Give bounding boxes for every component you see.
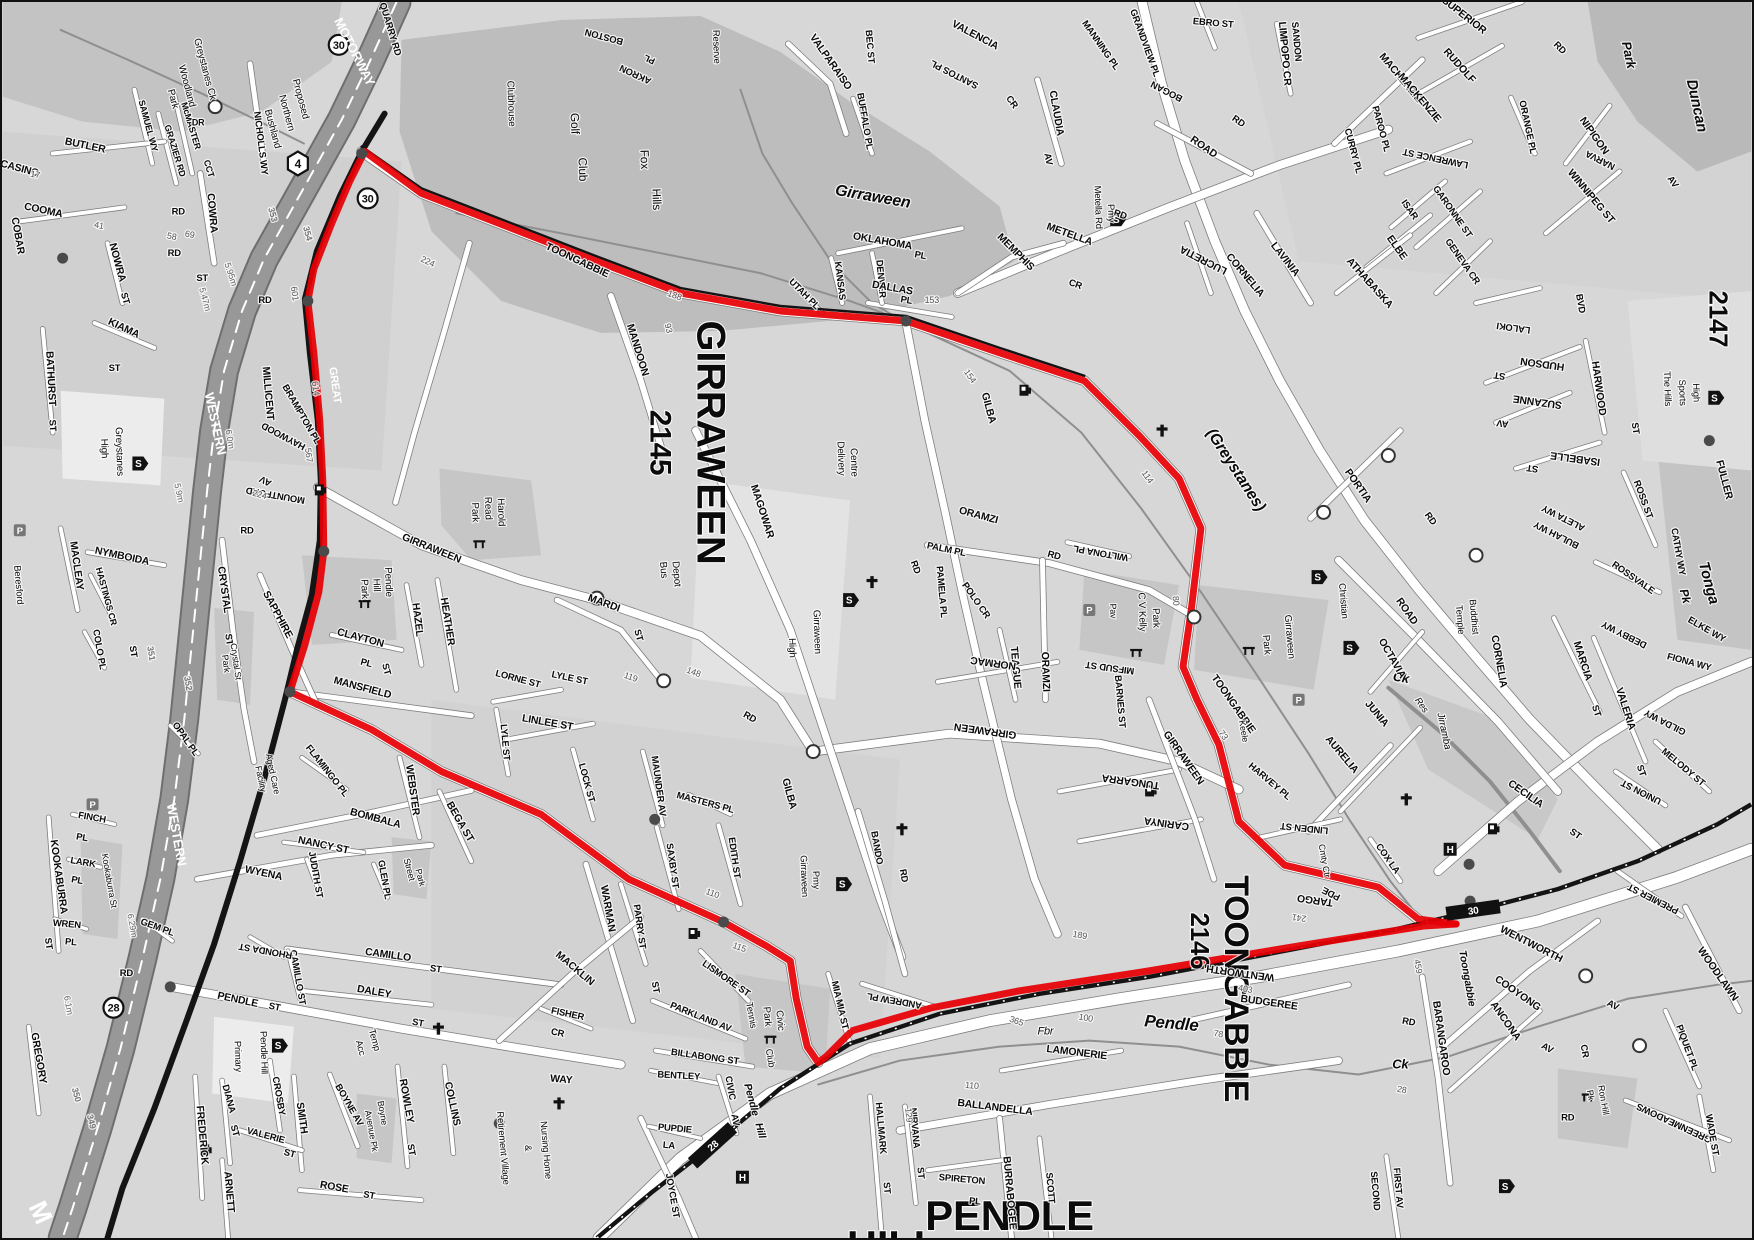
map-label: Delivery (835, 441, 847, 476)
picnic-table-icon (1243, 647, 1255, 649)
area-14 (1558, 1069, 1638, 1149)
traffic-signal-dot (900, 315, 911, 326)
school-icon-letter: S (839, 880, 846, 891)
map-label: Hill (370, 578, 381, 591)
roundabout (209, 100, 222, 113)
map-label: BENTLEY (657, 1069, 701, 1082)
map-label: ST (362, 1189, 376, 1202)
map-label: 2146 (1185, 913, 1213, 970)
school-icon-letter: S (135, 459, 142, 470)
map-label: High (98, 438, 110, 458)
map-label: 110 (965, 1080, 980, 1091)
map-label: Fox (637, 149, 652, 169)
map-label: 153 (925, 295, 940, 305)
fuel-icon-window (1490, 825, 1494, 829)
traffic-signal-dot (165, 981, 176, 992)
church-cross-icon-bar (1401, 796, 1412, 799)
map-label: 17 (30, 169, 41, 181)
map-label: ST (42, 937, 55, 951)
map-label: Greystanes (113, 427, 126, 476)
metroad-shield-number: 4 (295, 157, 302, 171)
map-label: Club (576, 157, 591, 182)
fuel-icon-nozzle (324, 487, 326, 493)
map-label: Pendle Hill (257, 1031, 269, 1074)
roundabout (1382, 449, 1395, 462)
map-label: Depot (670, 561, 683, 588)
map-label: 2145 (644, 410, 677, 476)
map-label: RD (897, 868, 910, 883)
roundabout (657, 674, 670, 687)
fuel-icon-window (691, 930, 695, 934)
picnic-table-leg (773, 1038, 775, 1044)
traffic-signal-dot (1704, 435, 1715, 446)
map-label: 2147 (1703, 291, 1731, 348)
picnic-table-leg (367, 602, 369, 608)
map-label: ST (1629, 422, 1642, 436)
church-cross-icon (437, 1023, 440, 1035)
area-20 (1628, 291, 1752, 470)
map-label: High (786, 638, 798, 658)
map-label: ST (1493, 369, 1507, 382)
traffic-signal-dot (302, 296, 313, 307)
map-label: 69 (184, 229, 195, 241)
map-label: 58 (166, 231, 177, 243)
map-label: LA (662, 1140, 675, 1152)
parking-icon-letter: P (1086, 606, 1092, 617)
map-label: C V Kelly (1135, 592, 1147, 632)
map-label: 601 (289, 286, 301, 302)
traffic-signal-dot (1464, 859, 1475, 870)
roundabout (1317, 506, 1330, 519)
map-label: ORAMZI (1039, 652, 1051, 693)
picnic-table-leg (1139, 651, 1141, 657)
traffic-signal-dot (284, 686, 295, 697)
picnic-table-leg (766, 1038, 768, 1044)
church-cross-icon-bar (867, 579, 878, 582)
map-label: Harold (495, 498, 507, 526)
map-label: Sports (1676, 379, 1688, 406)
map-label: PL (900, 294, 914, 307)
school-icon-letter: S (1502, 1182, 1509, 1193)
map-label: Golf (568, 113, 583, 135)
school-icon-letter: S (1314, 573, 1321, 584)
picnic-table-leg (1132, 651, 1134, 657)
roundabout (1187, 611, 1200, 624)
street-directory-map: SSSSSSSSSPPPPHH30302842830GIRRAWEEN2145T… (0, 0, 1754, 1240)
fuel-icon-window (1022, 387, 1026, 391)
map-label: Reserve (710, 30, 722, 64)
route-shield-number: 30 (362, 193, 374, 205)
map-label: The Hills (1661, 371, 1673, 407)
map-label: RD (168, 248, 182, 259)
map-label: Hills (649, 188, 664, 210)
map-label: PL (914, 249, 928, 262)
traffic-signal-dot (318, 546, 329, 557)
picnic-table-leg (482, 542, 484, 548)
map-label: 78 (1213, 1028, 1224, 1040)
school-icon-letter: S (1346, 643, 1353, 654)
map-label: 129 (903, 1108, 914, 1123)
map-label: 80 (1171, 596, 1182, 607)
school-icon-letter: S (1711, 393, 1718, 404)
picnic-table-icon (473, 540, 485, 542)
map-label: Girraween (798, 855, 810, 897)
map-label: RD (1561, 1112, 1575, 1123)
map-label: 614 (310, 381, 322, 397)
map-label: Pav (1108, 603, 1119, 619)
map-label: RD (120, 968, 134, 979)
route-shield-number: 28 (108, 1003, 120, 1015)
map-label: DR (192, 118, 205, 128)
picnic-table-leg (1251, 649, 1253, 655)
map-label: 28 (1396, 1084, 1407, 1096)
map-label: Park (761, 1006, 774, 1027)
picnic-table-leg (475, 542, 477, 548)
roundabout (807, 745, 820, 758)
map-label: Pendle (382, 567, 394, 598)
roundabout (1470, 549, 1483, 562)
hospital-icon-letter: H (1447, 845, 1454, 856)
railway-station-number: 30 (1467, 905, 1480, 917)
picnic-table-icon (359, 600, 371, 602)
map-label: WAY (550, 1074, 573, 1087)
map-label: Pmy (1105, 204, 1117, 223)
picnic-table-icon (1130, 649, 1142, 651)
map-label: Civic (773, 1010, 786, 1032)
fuel-icon-nozzle (1497, 826, 1499, 832)
map-label: PL (969, 1196, 982, 1208)
map-label: Fbr (1038, 1026, 1055, 1038)
map-label: PL (70, 874, 84, 887)
map-label: PL (75, 831, 89, 844)
map-label: Park (1260, 634, 1273, 655)
map-label: ST (127, 645, 140, 659)
map-label: CR (1578, 1044, 1591, 1059)
map-label: Girraween (810, 610, 823, 654)
map-label: High (1690, 383, 1702, 402)
map-label: ST (109, 363, 121, 374)
map-label: GIRRAWEEN (689, 321, 733, 565)
map-label: Park (1150, 608, 1162, 628)
map-label: Park (469, 502, 481, 522)
area-18 (61, 391, 165, 486)
church-cross-icon (557, 1097, 560, 1109)
map-label: ST (649, 981, 662, 995)
church-cross-icon-bar (1157, 427, 1168, 430)
parking-icon-letter: P (1296, 695, 1302, 706)
picnic-table-leg (360, 602, 362, 608)
hospital-icon-letter: H (739, 1173, 746, 1184)
map-label: Ck (1392, 1057, 1409, 1072)
map-label: Bus (657, 561, 669, 579)
traffic-signal-dot (356, 148, 367, 159)
map-label: Park (358, 579, 370, 599)
traffic-signal-dot (718, 917, 729, 928)
map-label: Metella Rd (1092, 185, 1105, 229)
map-label: HILL (847, 1222, 939, 1238)
map-label: ST (405, 1143, 418, 1157)
map-label: 241 (1291, 912, 1307, 924)
picnic-table-leg (1244, 649, 1246, 655)
map-canvas: SSSSSSSSSPPPPHH30302842830GIRRAWEEN2145T… (2, 2, 1752, 1238)
map-label: 567 (303, 447, 315, 463)
roundabout (1579, 969, 1592, 982)
map-label: ST (1526, 462, 1540, 475)
map-label: ST (914, 1167, 926, 1180)
map-label: Primary (232, 1041, 244, 1073)
fuel-icon-nozzle (1029, 388, 1031, 394)
church-cross-icon-bar (554, 1100, 565, 1103)
fuel-icon-nozzle (698, 931, 700, 937)
parking-icon-letter: P (17, 526, 23, 537)
map-label: RD (240, 525, 254, 536)
map-label: ST (880, 1182, 892, 1195)
fuel-icon-window (317, 486, 321, 490)
school-icon-letter: S (275, 1041, 282, 1052)
traffic-signal-dot (57, 253, 68, 264)
map-label: ST (196, 273, 208, 284)
school-icon-letter: S (846, 596, 853, 607)
map-label: RD (172, 206, 186, 217)
roundabout (1633, 1039, 1646, 1052)
map-label: Centre (848, 448, 860, 478)
church-cross-icon-bar (433, 1025, 444, 1028)
map-label: 41 (93, 220, 104, 232)
map-label: Pmy (810, 871, 822, 890)
map-label: Clubhouse (504, 81, 517, 128)
map-label: PL (65, 936, 78, 948)
map-label: Read (482, 497, 494, 520)
picnic-table-leg (1583, 1095, 1585, 1101)
picnic-table-icon (764, 1036, 776, 1038)
map-label: ST (411, 1017, 425, 1030)
map-label: RD (258, 295, 272, 306)
map-label: RD (1401, 1016, 1416, 1029)
map-label: ST (46, 419, 58, 432)
church-cross-icon-bar (896, 826, 907, 829)
map-label: ST (429, 963, 443, 976)
parking-icon-letter: P (89, 800, 95, 811)
